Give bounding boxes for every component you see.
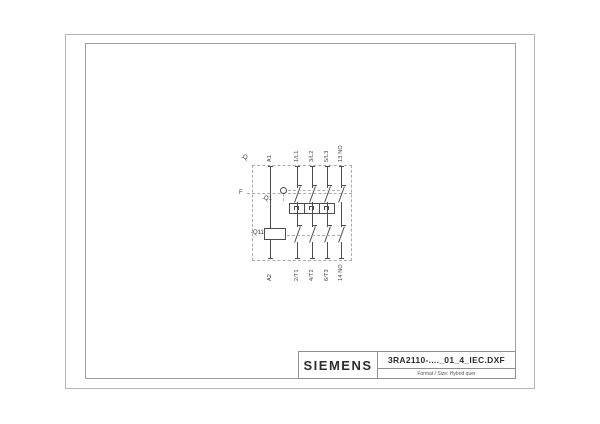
thermal-overload-symbol <box>324 206 329 210</box>
wire <box>312 242 313 259</box>
terminal-label-13no: 13 NO <box>338 145 344 162</box>
wire <box>327 242 328 259</box>
terminal-tick <box>310 258 315 259</box>
thermal-overload-symbol <box>309 206 314 210</box>
terminal-label-14no: 14 NO <box>338 264 344 281</box>
function-separation-line <box>247 193 352 194</box>
drawing-name: 3RA2110-...._01_4_IEC.DXF <box>377 351 516 369</box>
function-line-label: F <box>239 190 243 196</box>
contactor-coil <box>264 228 286 240</box>
rotary-operator-symbol <box>280 187 287 194</box>
wire-coil-lower <box>270 240 271 259</box>
siemens-logo: SIEMENS <box>298 351 378 379</box>
wire-coil-upper <box>270 166 271 228</box>
terminal-tick <box>325 258 330 259</box>
terminal-label-3l2: 3/L2 <box>309 150 315 162</box>
assembly-label: -Q <box>241 155 248 161</box>
contactor-linkage-line <box>287 235 340 236</box>
contactor-label: -Q11 <box>251 230 264 236</box>
overload-cell-divider <box>319 203 320 214</box>
terminal-label-a2: A2 <box>267 274 273 281</box>
operator-link-line <box>283 194 284 201</box>
terminal-label-5l3: 5/L3 <box>324 150 330 162</box>
terminal-tick <box>339 258 344 259</box>
wire <box>341 242 342 259</box>
terminal-label-2t1: 2/T1 <box>294 269 300 281</box>
wire <box>297 242 298 259</box>
terminal-label-6t3: 6/T3 <box>324 269 330 281</box>
terminal-label-1l1: 1/L1 <box>294 150 300 162</box>
terminal-tick <box>268 258 273 259</box>
terminal-tick <box>295 258 300 259</box>
thermal-overload-symbol <box>294 206 299 210</box>
drawing-page: SIEMENS 3RA2110-...._01_4_IEC.DXF Format… <box>0 0 600 424</box>
overload-cell-divider <box>304 203 305 214</box>
breaker-linkage-line <box>288 190 340 191</box>
wire <box>341 202 342 227</box>
terminal-label-a1: A1 <box>267 155 273 162</box>
terminal-label-4t2: 4/T2 <box>309 269 315 281</box>
format-size-note: Format / Size: Hybrid quer <box>377 368 516 379</box>
